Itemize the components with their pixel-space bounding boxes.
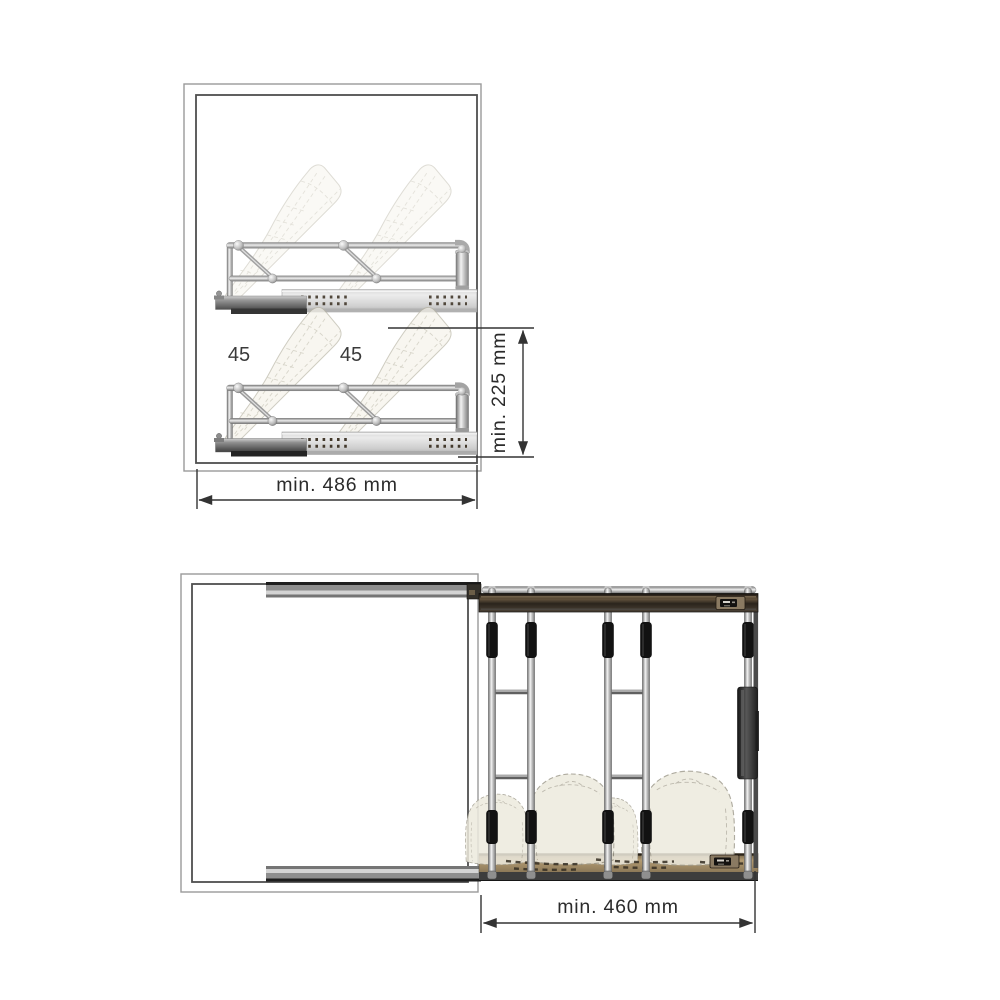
cabinet-inner-outline bbox=[192, 584, 468, 882]
top-bar-highlight bbox=[481, 596, 756, 598]
shoe-angle-label-2: 45 bbox=[340, 344, 362, 366]
top-bar-shadow bbox=[481, 609, 756, 610]
shoe-left bbox=[203, 304, 347, 448]
top-view-diagram: min. 460 mm bbox=[181, 574, 759, 933]
bracket-detail bbox=[469, 590, 475, 595]
lower-rack: 45 45 bbox=[203, 304, 477, 457]
width-dimension-label: min. 460 mm bbox=[557, 896, 679, 918]
divider-post-4 bbox=[640, 586, 652, 879]
cabinet-rail-bottom bbox=[266, 866, 481, 882]
handle-notch bbox=[756, 711, 759, 751]
brand-label-bottom bbox=[710, 855, 739, 868]
divider-post-2 bbox=[525, 586, 537, 879]
ghost-shoe-left bbox=[203, 161, 347, 305]
brand-label-top bbox=[716, 597, 745, 610]
frame-top-tube bbox=[482, 587, 756, 594]
shoe-rack-drawing: 45 45 min. 486 mm min. 225 mm bbox=[0, 0, 1000, 1000]
width-dimension-label: min. 486 mm bbox=[276, 474, 398, 496]
stored-shoes-top-view bbox=[466, 771, 735, 865]
upper-rack-ghost bbox=[203, 161, 477, 314]
shoe-angle-label-1: 45 bbox=[228, 344, 250, 366]
cabinet-rail-top bbox=[266, 582, 481, 598]
side-view-diagram: 45 45 min. 486 mm min. 225 mm bbox=[184, 84, 534, 509]
technical-drawing-page: 45 45 min. 486 mm min. 225 mm bbox=[0, 0, 1000, 1000]
side-handle bbox=[738, 687, 758, 779]
divider-rungs bbox=[495, 691, 643, 777]
height-dimension-label: min. 225 mm bbox=[488, 332, 510, 454]
shoe-top-4 bbox=[641, 771, 734, 865]
shoe-top-2 bbox=[528, 774, 614, 865]
lower-rack-frame bbox=[214, 383, 477, 457]
handle-highlight bbox=[741, 690, 744, 776]
cabinet-outer-outline bbox=[181, 574, 478, 892]
upper-rack-frame bbox=[214, 240, 477, 314]
divider-post-3 bbox=[602, 586, 614, 879]
frame-bottom-rail bbox=[479, 872, 758, 881]
divider-post-1 bbox=[486, 586, 498, 879]
